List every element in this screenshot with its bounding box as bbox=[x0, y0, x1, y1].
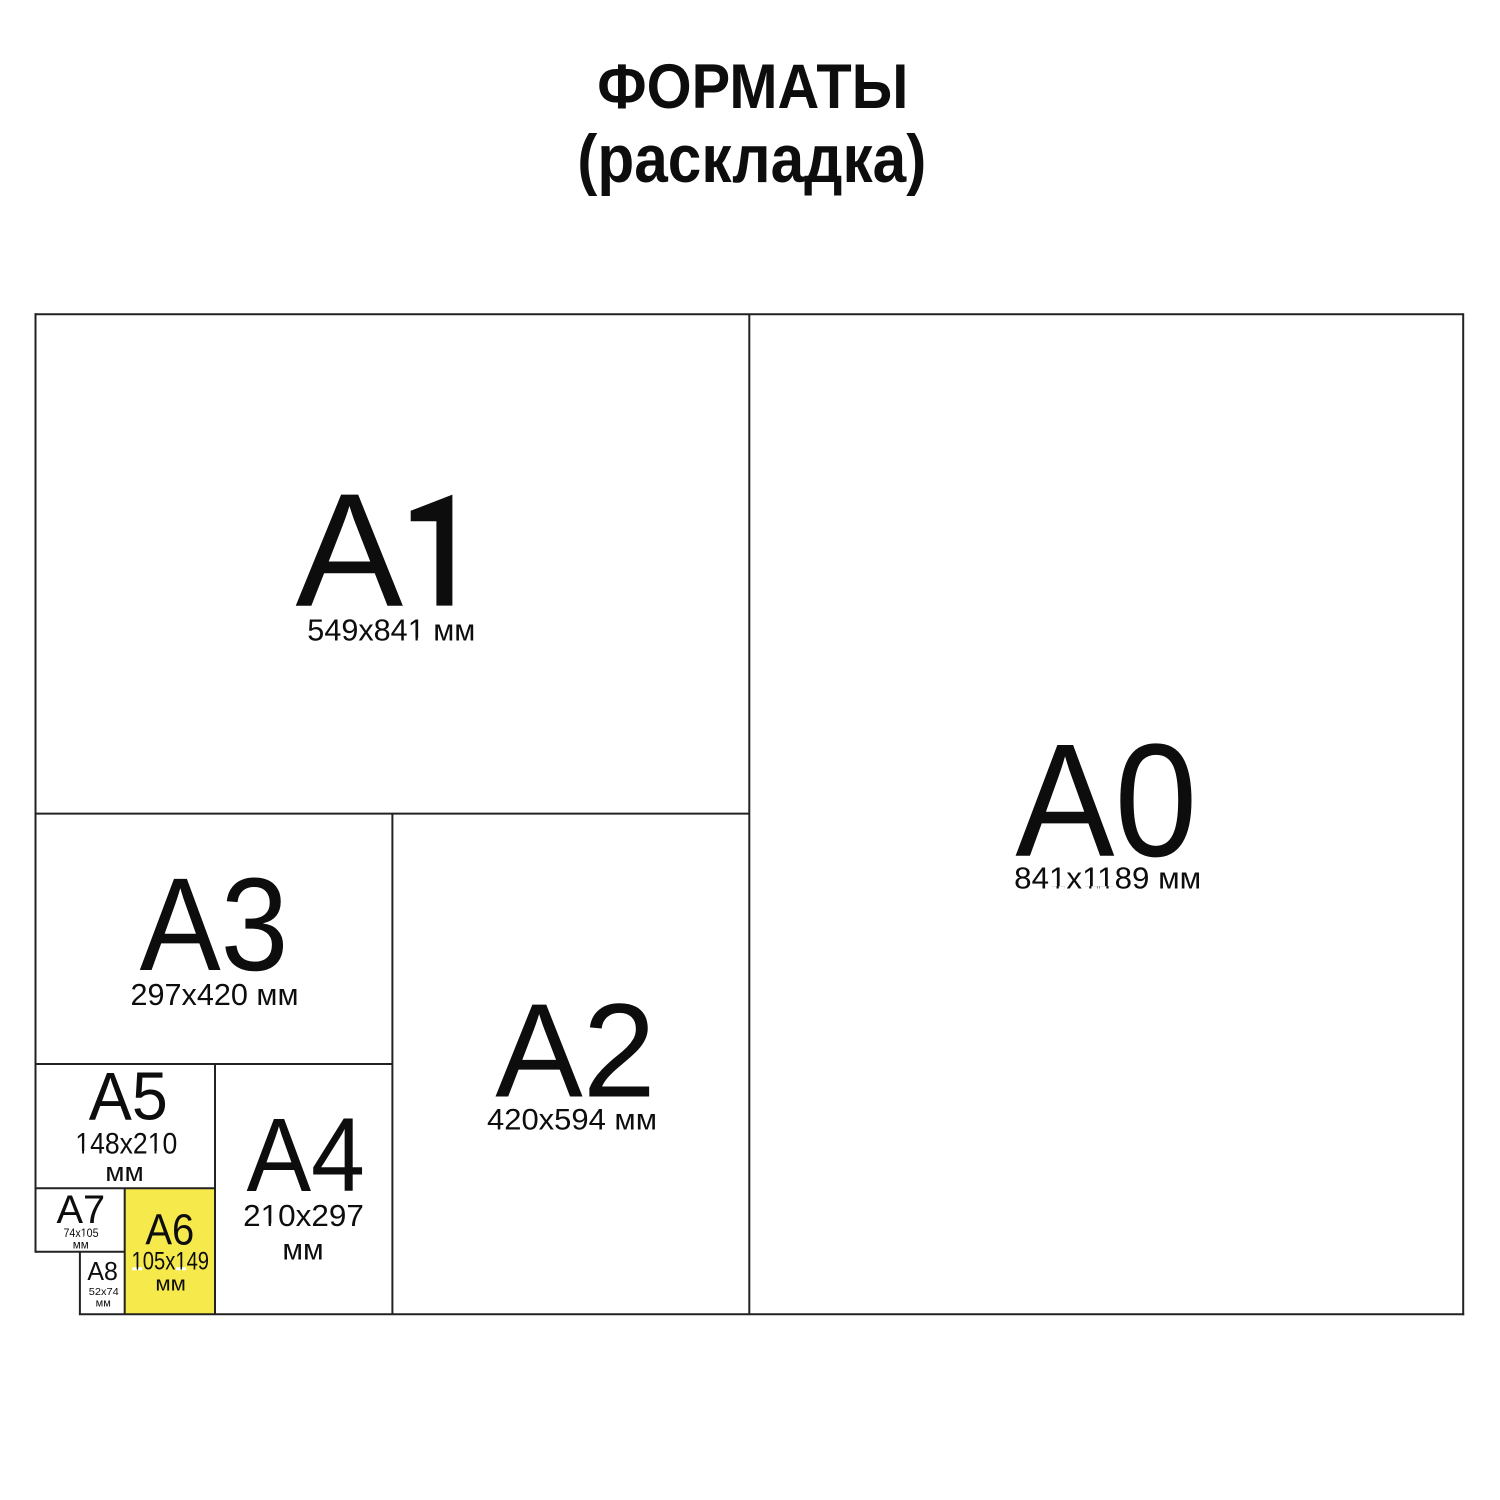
svg-text:A3: A3 bbox=[140, 851, 289, 999]
svg-text:A4: A4 bbox=[246, 1097, 365, 1214]
svg-text:210x297: 210x297 bbox=[243, 1198, 364, 1233]
svg-text:148x210: 148x210 bbox=[75, 1127, 177, 1160]
svg-text:52x74: 52x74 bbox=[89, 1286, 119, 1298]
svg-text:(раскладка): (раскладка) bbox=[577, 121, 926, 197]
svg-text:549x841 мм: 549x841 мм bbox=[307, 612, 475, 647]
svg-text:297x420 мм: 297x420 мм bbox=[131, 978, 299, 1012]
svg-text:мм: мм bbox=[105, 1159, 144, 1187]
svg-text:A8: A8 bbox=[87, 1258, 118, 1286]
svg-text:420x594 мм: 420x594 мм bbox=[487, 1103, 657, 1136]
svg-text:мм: мм bbox=[155, 1274, 186, 1296]
svg-text:мм: мм bbox=[282, 1234, 323, 1267]
svg-text:841x1189 мм: 841x1189 мм bbox=[1014, 861, 1201, 896]
svg-text:мм: мм bbox=[73, 1238, 89, 1251]
svg-text:105x149: 105x149 bbox=[132, 1247, 210, 1275]
svg-text:мм: мм bbox=[96, 1297, 111, 1309]
svg-text:A5: A5 bbox=[89, 1058, 168, 1134]
svg-text:ФОРМАТЫ: ФОРМАТЫ bbox=[597, 52, 908, 122]
